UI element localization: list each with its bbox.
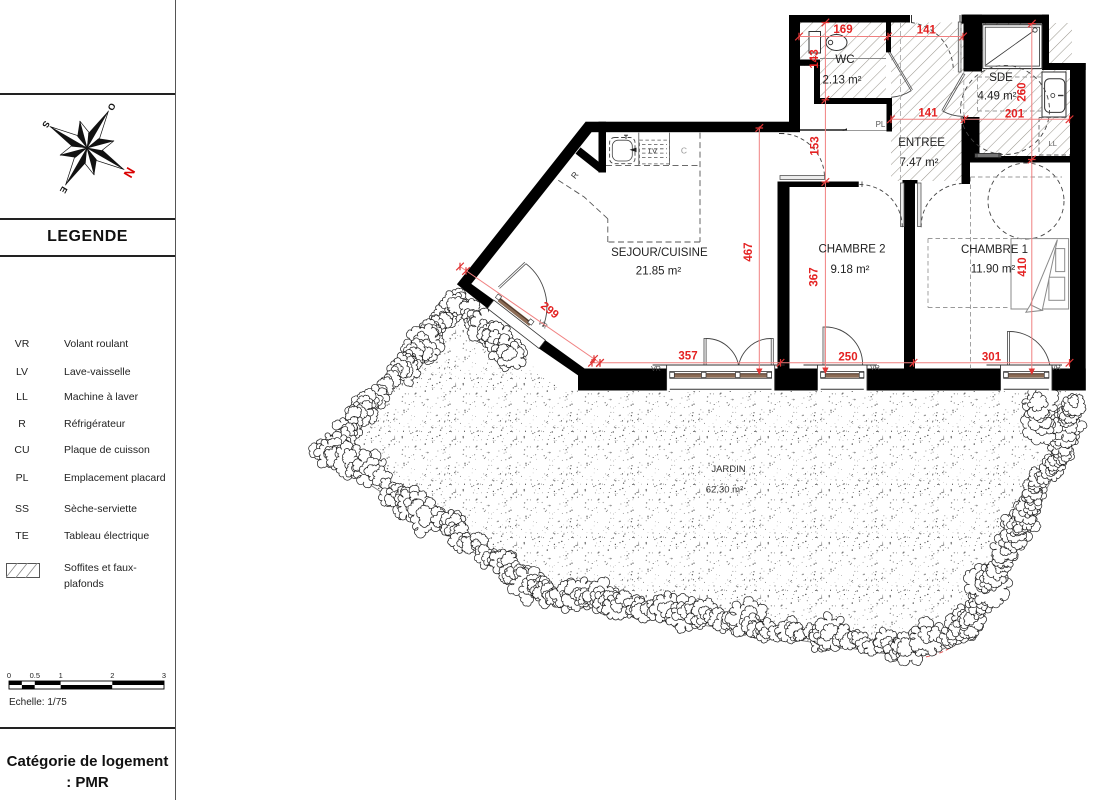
svg-text:299: 299 xyxy=(538,300,560,321)
svg-text:SEJOUR/CUISINE: SEJOUR/CUISINE xyxy=(611,247,708,259)
svg-text:WC: WC xyxy=(835,54,854,66)
svg-text:260: 260 xyxy=(1017,82,1029,101)
svg-text:9.18 m²: 9.18 m² xyxy=(831,264,870,276)
svg-text:PL: PL xyxy=(876,120,886,129)
svg-text:C: C xyxy=(681,146,687,156)
svg-text:301: 301 xyxy=(982,351,1002,363)
svg-text:467: 467 xyxy=(743,242,755,261)
svg-text:VR: VR xyxy=(651,366,661,373)
svg-text:357: 357 xyxy=(678,351,697,363)
svg-text:141: 141 xyxy=(917,25,937,37)
svg-text:R: R xyxy=(569,170,581,181)
svg-text:250: 250 xyxy=(838,351,857,363)
svg-text:141: 141 xyxy=(918,108,938,120)
svg-text:ENTREE: ENTREE xyxy=(898,137,945,149)
svg-text:201: 201 xyxy=(1005,109,1025,121)
svg-text:21.85 m²: 21.85 m² xyxy=(636,266,682,278)
svg-text:VR: VR xyxy=(1051,365,1061,372)
svg-text:4.49 m²: 4.49 m² xyxy=(978,91,1017,103)
svg-text:169: 169 xyxy=(833,24,852,36)
svg-text:11.90 m²: 11.90 m² xyxy=(971,264,1016,276)
svg-text:CHAMBRE 2: CHAMBRE 2 xyxy=(818,244,885,256)
svg-text:CHAMBRE 1: CHAMBRE 1 xyxy=(961,244,1028,256)
svg-text:410: 410 xyxy=(1017,257,1029,276)
svg-text:LV: LV xyxy=(648,147,657,156)
svg-text:SDE: SDE xyxy=(989,72,1013,84)
svg-text:153: 153 xyxy=(810,136,822,155)
svg-text:143: 143 xyxy=(809,49,821,68)
svg-text:62.30 m²: 62.30 m² xyxy=(706,485,744,496)
svg-text:LL: LL xyxy=(1049,139,1057,148)
svg-text:7.47 m²: 7.47 m² xyxy=(900,157,939,169)
svg-text:367: 367 xyxy=(808,267,820,286)
svg-text:VR: VR xyxy=(870,365,880,372)
svg-text:JARDIN: JARDIN xyxy=(711,464,745,475)
svg-text:2.13 m²: 2.13 m² xyxy=(823,75,862,87)
